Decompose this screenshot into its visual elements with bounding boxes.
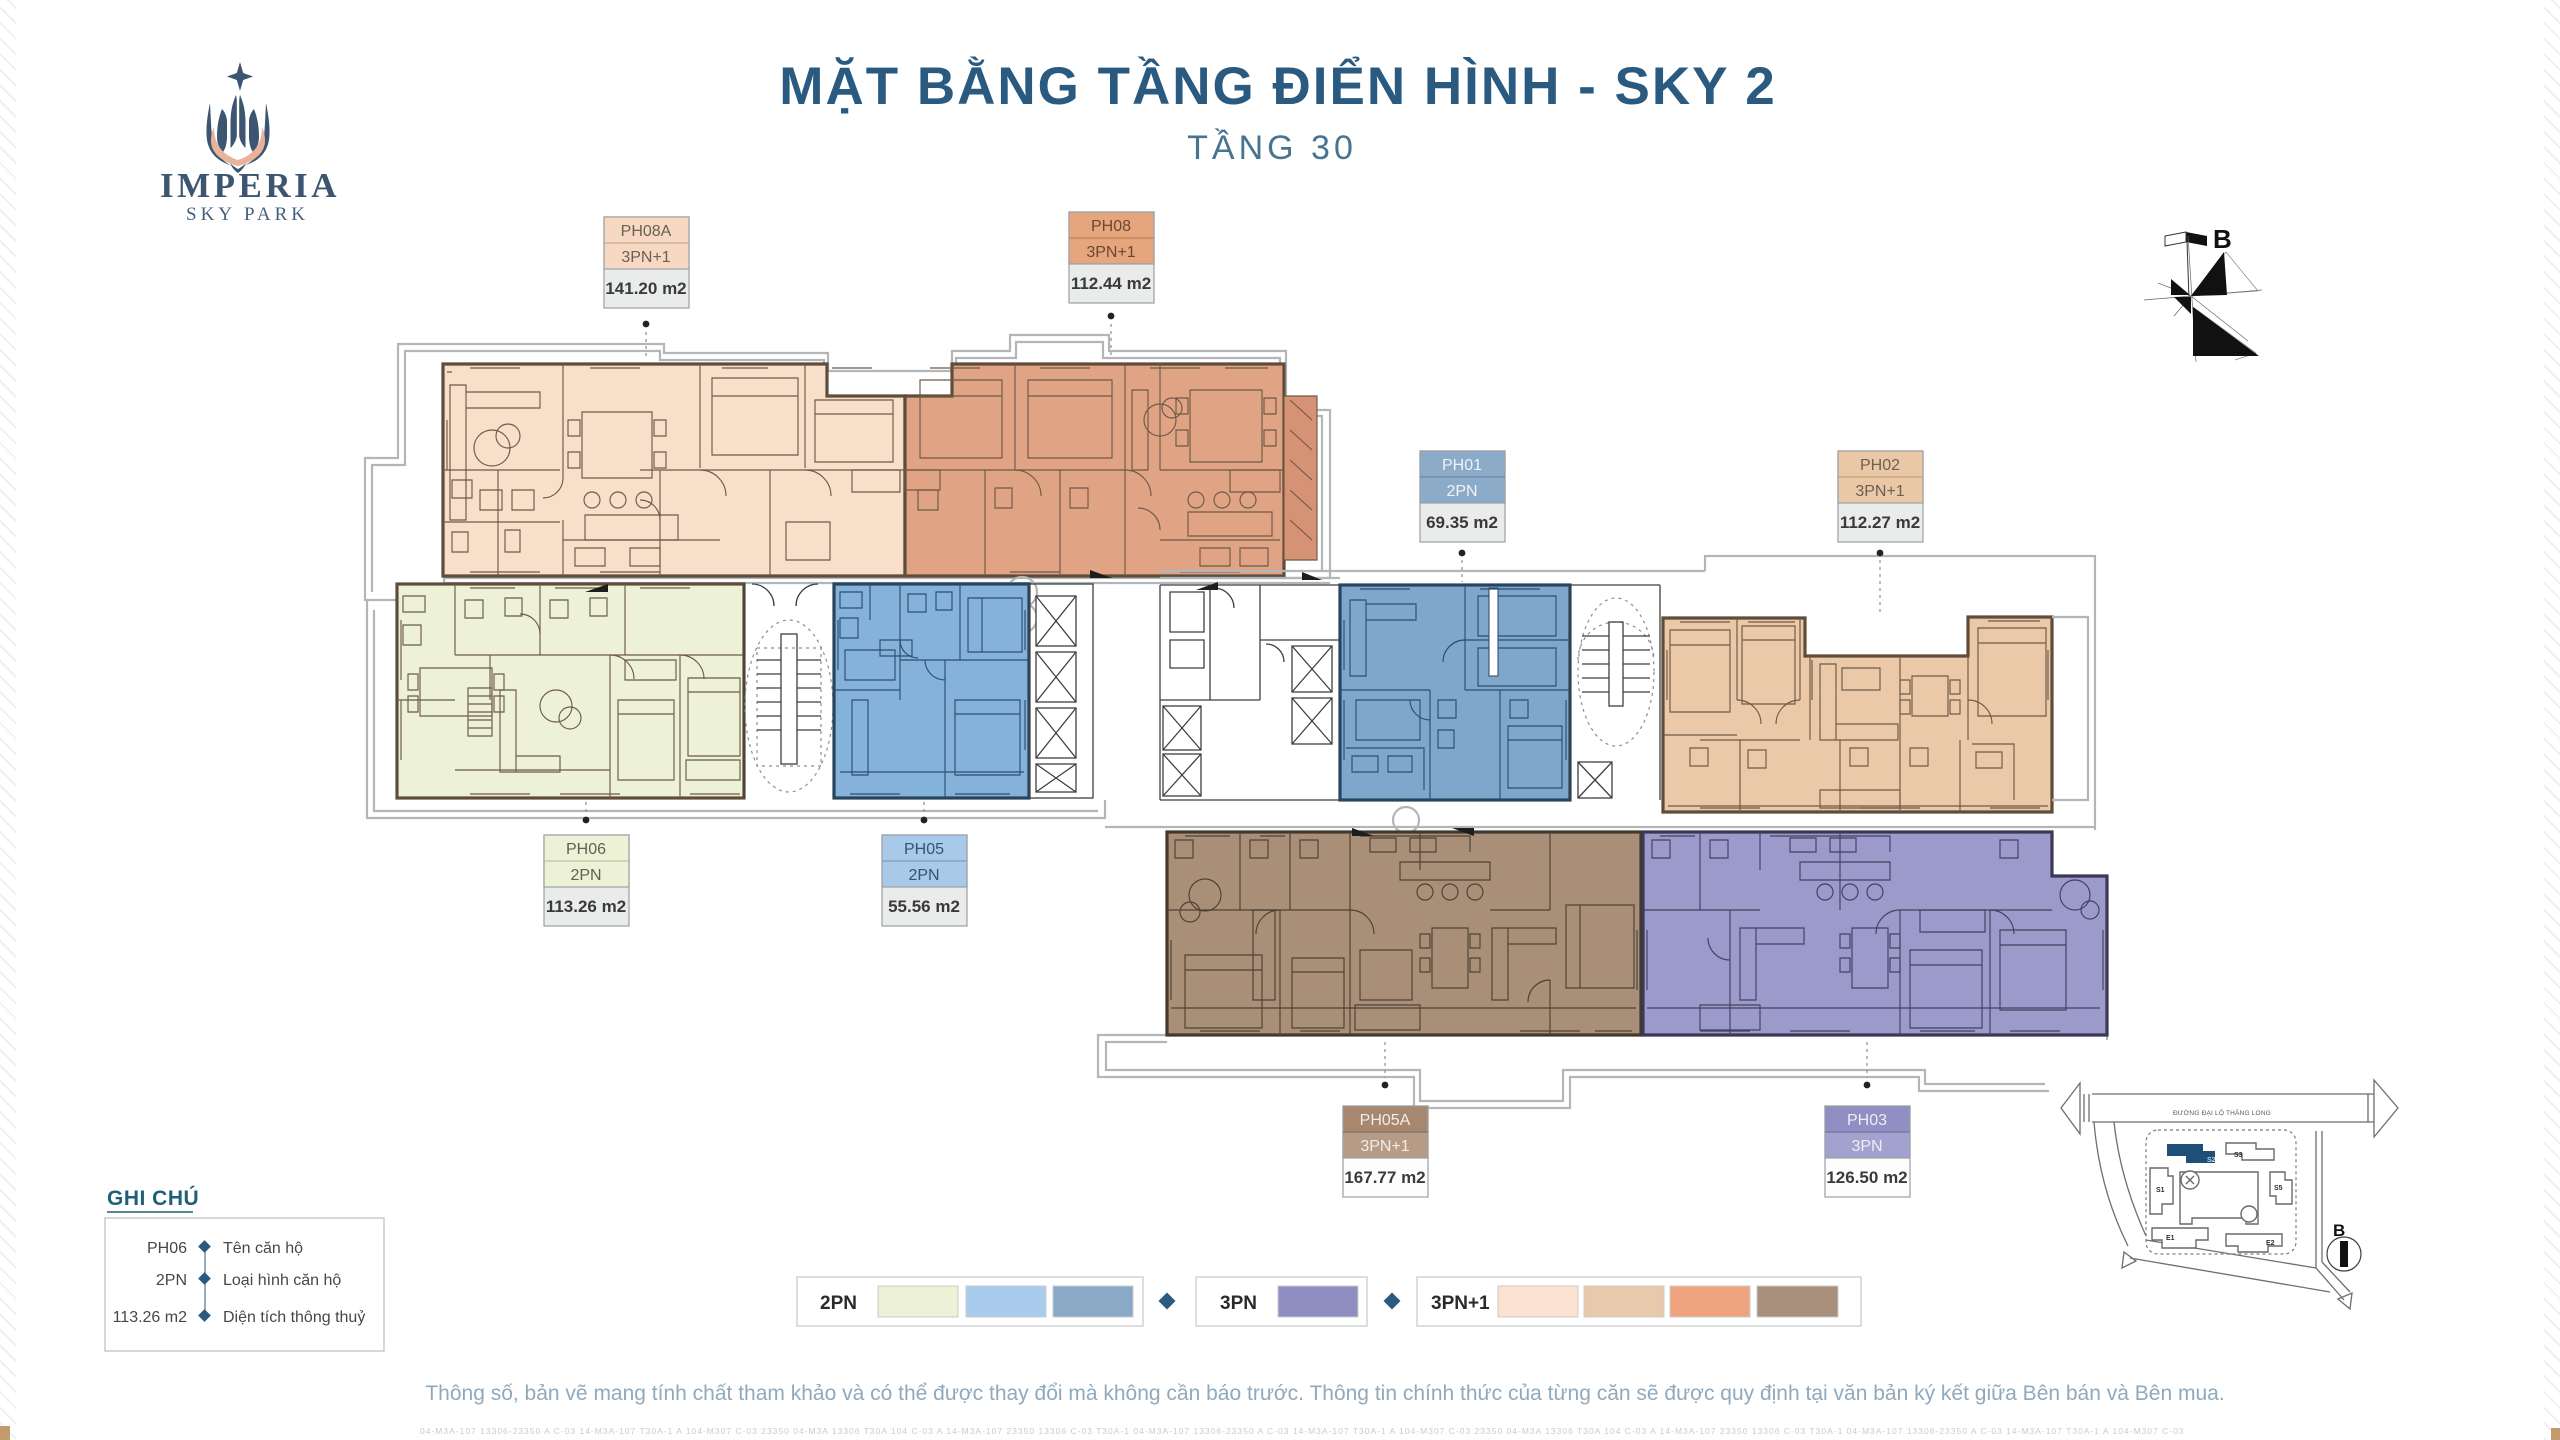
svg-text:2PN: 2PN: [908, 867, 939, 884]
svg-text:141.20 m2: 141.20 m2: [605, 279, 686, 298]
svg-text:SKY PARK: SKY PARK: [186, 204, 309, 225]
svg-text:126.50 m2: 126.50 m2: [1826, 1168, 1907, 1187]
svg-text:PH08A: PH08A: [621, 223, 672, 240]
svg-text:PH06: PH06: [566, 841, 606, 858]
svg-text:IMPERIA: IMPERIA: [160, 166, 340, 205]
svg-text:ĐƯỜNG ĐẠI LỘ THĂNG LONG: ĐƯỜNG ĐẠI LỘ THĂNG LONG: [2173, 1108, 2271, 1117]
svg-text:E2: E2: [2266, 1240, 2275, 1247]
svg-text:B: B: [2213, 224, 2232, 254]
svg-text:55.56 m2: 55.56 m2: [888, 897, 960, 916]
svg-text:PH05: PH05: [904, 841, 944, 858]
svg-text:113.26 m2: 113.26 m2: [546, 897, 626, 916]
svg-text:S5: S5: [2274, 1185, 2283, 1192]
svg-text:Diện tích thông thuỷ: Diện tích thông thuỷ: [223, 1309, 365, 1326]
svg-text:3PN+1: 3PN+1: [1360, 1138, 1409, 1155]
svg-text:3PN+1: 3PN+1: [1086, 244, 1135, 261]
svg-text:GHI CHÚ: GHI CHÚ: [107, 1186, 199, 1210]
svg-text:E1: E1: [2166, 1235, 2175, 1242]
svg-text:MẶT BẰNG TẦNG ĐIỂN HÌNH - SKY: MẶT BẰNG TẦNG ĐIỂN HÌNH - SKY 2: [779, 56, 1776, 116]
svg-text:2PN: 2PN: [156, 1272, 187, 1289]
svg-text:PH05A: PH05A: [1360, 1112, 1411, 1129]
svg-text:Tên căn hộ: Tên căn hộ: [223, 1240, 303, 1257]
svg-text:PH06: PH06: [147, 1240, 187, 1257]
svg-text:04-M3A-107 13306-23350 A C-03: 04-M3A-107 13306-23350 A C-03 14-M3A-107…: [420, 1426, 2185, 1436]
svg-text:3PN: 3PN: [1220, 1293, 1257, 1314]
svg-text:PH08: PH08: [1091, 218, 1131, 235]
svg-text:167.77 m2: 167.77 m2: [1344, 1168, 1425, 1187]
svg-text:3PN+1: 3PN+1: [1431, 1293, 1490, 1314]
svg-text:112.27 m2: 112.27 m2: [1840, 513, 1920, 532]
svg-text:S3: S3: [2234, 1152, 2243, 1159]
svg-text:S1: S1: [2156, 1187, 2165, 1194]
svg-text:TẦNG 30: TẦNG 30: [1187, 129, 1357, 167]
svg-text:PH02: PH02: [1860, 457, 1900, 474]
svg-text:Loại hình căn hộ: Loại hình căn hộ: [223, 1272, 341, 1289]
svg-text:113.26 m2: 113.26 m2: [113, 1309, 188, 1326]
svg-text:3PN+1: 3PN+1: [1855, 483, 1904, 500]
svg-text:2PN: 2PN: [570, 867, 601, 884]
svg-text:112.44 m2: 112.44 m2: [1071, 274, 1151, 293]
svg-text:2PN: 2PN: [1446, 483, 1477, 500]
svg-text:S2: S2: [2207, 1157, 2216, 1164]
svg-text:2PN: 2PN: [820, 1293, 857, 1314]
svg-text:PH03: PH03: [1847, 1112, 1887, 1129]
svg-text:Thông số, bản vẽ mang tính chấ: Thông số, bản vẽ mang tính chất tham khả…: [425, 1382, 2224, 1405]
svg-text:PH01: PH01: [1442, 457, 1482, 474]
svg-text:B: B: [2333, 1221, 2345, 1240]
svg-text:3PN+1: 3PN+1: [621, 249, 670, 266]
svg-text:69.35 m2: 69.35 m2: [1426, 513, 1498, 532]
svg-text:3PN: 3PN: [1851, 1138, 1882, 1155]
